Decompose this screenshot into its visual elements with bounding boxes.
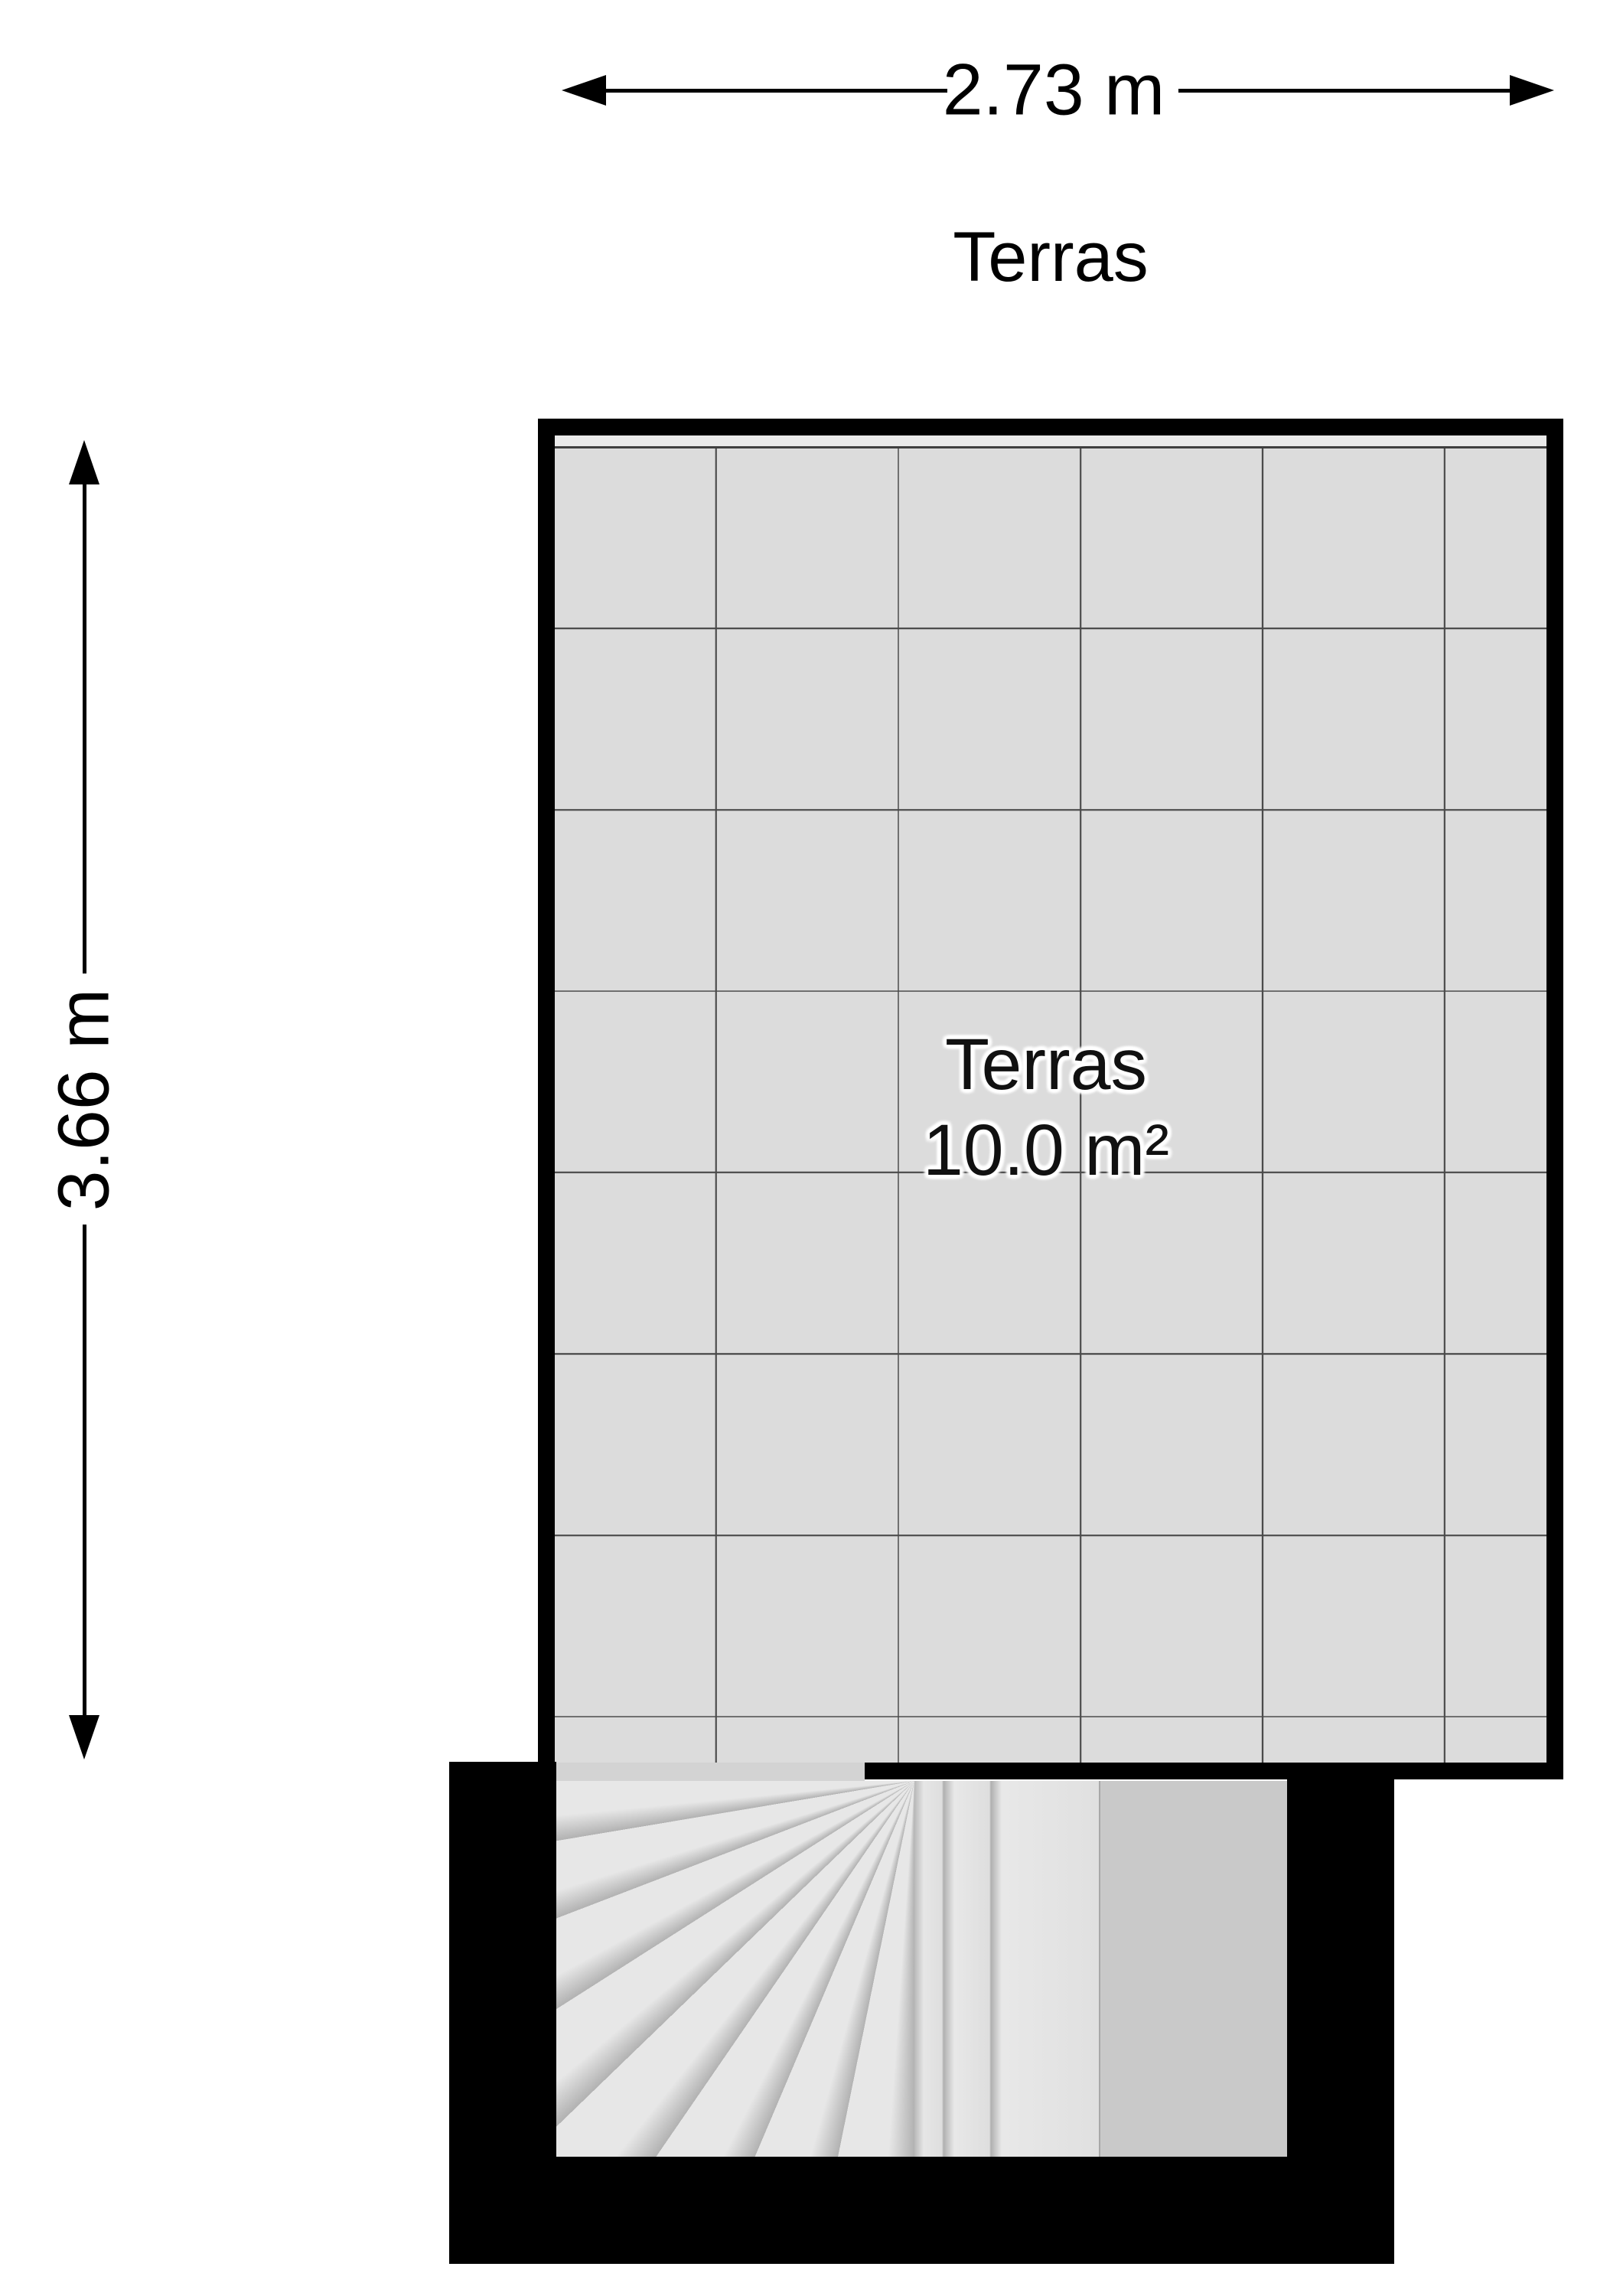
room-label: Terras 10.0 m²: [923, 1022, 1169, 1193]
floor-plan-title: Terras: [953, 222, 1149, 292]
dimension-line-right: [1178, 89, 1517, 93]
arrow-up-icon: [69, 440, 99, 484]
floor-plan-canvas: 2.73 m Terras 3.66 m Terras 10.0 m²: [0, 0, 1623, 2296]
stair-landing: [1099, 1781, 1287, 2157]
room-area: 10.0 m²: [923, 1107, 1169, 1193]
stairwell-bottom-wall: [449, 2157, 1394, 2264]
threshold-strip: [556, 1763, 865, 1781]
straight-steps: [914, 1781, 1099, 2157]
arrow-down-icon: [69, 1715, 99, 1760]
height-dimension-label: 3.66 m: [48, 989, 121, 1211]
room-name: Terras: [923, 1022, 1169, 1107]
dimension-line-top: [83, 481, 86, 974]
width-dimension-label: 2.73 m: [943, 54, 1165, 127]
arrow-right-icon: [1510, 75, 1554, 106]
winder-stairs: [556, 1781, 1287, 2157]
room-bottom-wall: [865, 1763, 1563, 1779]
dimension-line-bottom: [83, 1225, 86, 1718]
dimension-line-left: [597, 89, 947, 93]
